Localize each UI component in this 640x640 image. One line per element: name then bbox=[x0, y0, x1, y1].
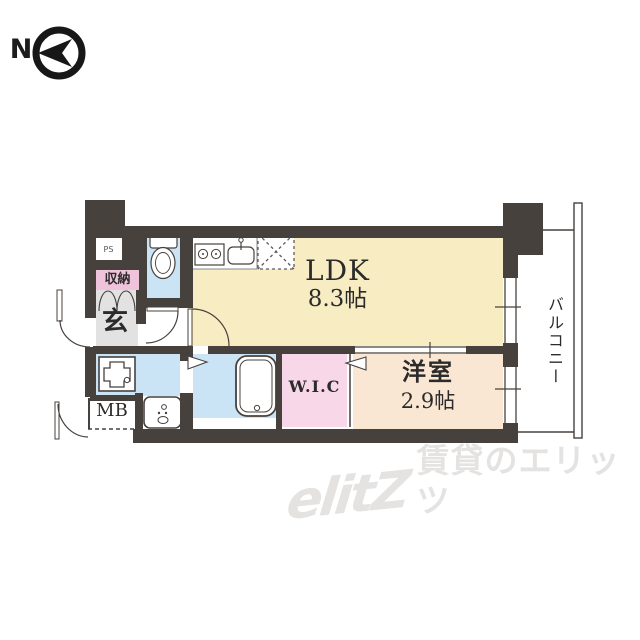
storage-label: 収納 bbox=[96, 270, 139, 290]
pipe-space-label: PS bbox=[95, 246, 122, 254]
bathtub-icon bbox=[236, 356, 276, 416]
toilet-icon bbox=[150, 236, 177, 279]
watermark: elitZ 賃貸のエリッツ bbox=[288, 441, 640, 520]
ldk-label: LDK bbox=[290, 256, 385, 285]
wic-label: W.I.C bbox=[281, 379, 348, 396]
watermark-logo: elitZ bbox=[285, 467, 410, 526]
balcony-rail bbox=[574, 203, 582, 438]
toilet-door-swing bbox=[146, 307, 178, 343]
western-room-size-label: 2.9帖 bbox=[378, 390, 478, 412]
refrigerator-space-icon bbox=[258, 234, 294, 269]
balcony-label: バルコニー bbox=[534, 261, 562, 421]
mb-door-swing bbox=[55, 402, 88, 439]
north-arrow-icon bbox=[36, 30, 82, 76]
western-room-label: 洋室 bbox=[378, 359, 478, 384]
meter-box-label: MB bbox=[89, 402, 135, 421]
kitchen-stove-icon bbox=[195, 244, 224, 265]
washing-machine-pan-icon bbox=[99, 357, 135, 391]
floor-plan-page: N PS 収納 玄 MB LDK 8.3帖 W.I.C 洋室 2.9帖 バルコニ… bbox=[0, 0, 640, 640]
kitchen-area bbox=[191, 234, 294, 269]
north-label: N bbox=[6, 36, 36, 64]
ldk-size-label: 8.3帖 bbox=[290, 287, 385, 311]
entrance-label: 玄 bbox=[97, 309, 133, 336]
vanity-sink-icon bbox=[144, 397, 181, 428]
watermark-text: 賃貸のエリッツ bbox=[416, 441, 640, 520]
